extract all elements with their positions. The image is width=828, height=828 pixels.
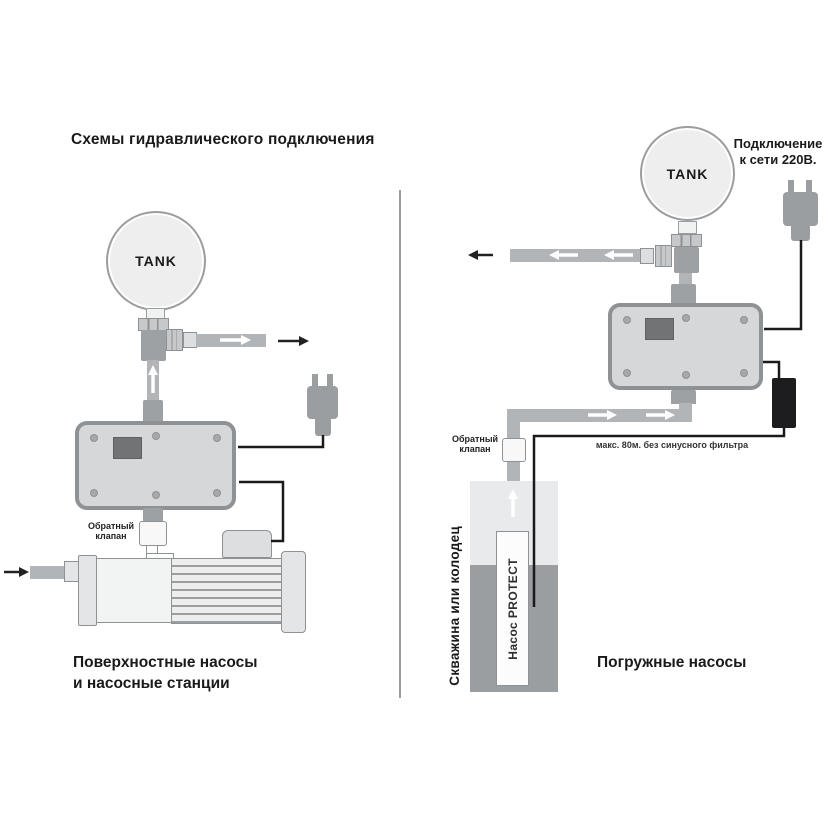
check-valve-label: Обратный клапан: [450, 435, 500, 454]
screw-icon: [152, 491, 160, 499]
controller-display: [113, 437, 142, 459]
outlet-coupler: [183, 332, 197, 348]
screw-icon: [90, 434, 98, 442]
well-label: Скважина или колодец: [447, 526, 462, 686]
screw-icon: [682, 371, 690, 379]
outlet-fitting-nut: [166, 329, 183, 351]
screw-icon: [152, 432, 160, 440]
tee-junction: [141, 330, 166, 361]
tank-label: TANK: [135, 253, 177, 269]
pump-body: [96, 558, 172, 623]
pump-controller: [75, 421, 236, 510]
screw-icon: [213, 434, 221, 442]
outflow-arrowhead-icon: [468, 250, 478, 260]
power-line: Подключение: [728, 136, 828, 152]
well-label-wrap: Скважина или колодец: [444, 518, 464, 694]
riser-pipe: [147, 360, 159, 401]
section-divider: [399, 190, 401, 698]
screw-icon: [740, 316, 748, 324]
plug-wire: [764, 240, 801, 329]
suction-pipe-horizontal: [507, 409, 692, 422]
controller-bottom-port: [143, 508, 163, 522]
pump-controller: [608, 303, 763, 390]
power-plug: [783, 192, 818, 226]
wires-and-arrows-overlay: [0, 0, 828, 828]
tee-junction: [674, 247, 699, 273]
plug-neck: [315, 419, 331, 436]
power-line: к сети 220В.: [728, 152, 828, 168]
outlet-fitting-nut: [655, 245, 672, 267]
controller-top-port: [143, 400, 163, 423]
power-plug: [307, 386, 338, 419]
controller-top-port: [671, 284, 696, 304]
tank-label: TANK: [667, 166, 709, 182]
tank-fitting-nut: [671, 234, 702, 247]
caption-line: и насосные станции: [73, 673, 258, 694]
caption-line: Поверхностные насосы: [73, 652, 258, 673]
outlet-pipe: [510, 249, 640, 262]
outflow-arrowhead-icon: [299, 336, 309, 346]
screw-icon: [682, 314, 690, 322]
pump-head: [78, 555, 97, 626]
motor-wire-to-pump: [534, 428, 784, 607]
pump-terminal-box: [222, 530, 272, 558]
pressure-tank: TANK: [640, 126, 735, 221]
check-valve-label: Обратный клапан: [85, 522, 137, 541]
controller-display: [645, 318, 674, 340]
pump-end-cap: [281, 551, 306, 633]
tank-stub: [678, 221, 697, 234]
hydraulic-connection-schemes: Схемы гидравлического подключения TANK О…: [0, 0, 828, 828]
screw-icon: [213, 489, 221, 497]
check-valve: [502, 438, 526, 462]
pressure-tank: TANK: [106, 211, 206, 311]
cable-length-note: макс. 80м. без синусного фильтра: [592, 440, 752, 450]
screw-icon: [623, 369, 631, 377]
inflow-arrowhead-icon: [19, 567, 29, 577]
pump-motor-ribs: [171, 558, 282, 624]
plug-wire: [238, 435, 323, 447]
power-connection-label: Подключение к сети 220В.: [728, 136, 828, 167]
check-valve: [139, 521, 167, 546]
page-title: Схемы гидравлического подключения: [71, 131, 375, 149]
screw-icon: [740, 369, 748, 377]
controller-bottom-port: [671, 390, 696, 404]
motor-cable-filter: [772, 378, 796, 428]
outlet-pipe: [196, 334, 266, 347]
submersible-pump-caption: Погружные насосы: [597, 652, 746, 673]
plug-neck: [791, 226, 810, 241]
submersible-pump: Насос PROTECT: [496, 531, 529, 686]
screw-icon: [90, 489, 98, 497]
pump-inlet-pipe: [30, 566, 67, 579]
suction-pipe-elbow: [507, 409, 520, 438]
submersible-pump-label: Насос PROTECT: [506, 558, 520, 660]
surface-pump-caption: Поверхностные насосы и насосные станции: [73, 652, 258, 694]
screw-icon: [623, 316, 631, 324]
outlet-coupler: [640, 248, 654, 264]
